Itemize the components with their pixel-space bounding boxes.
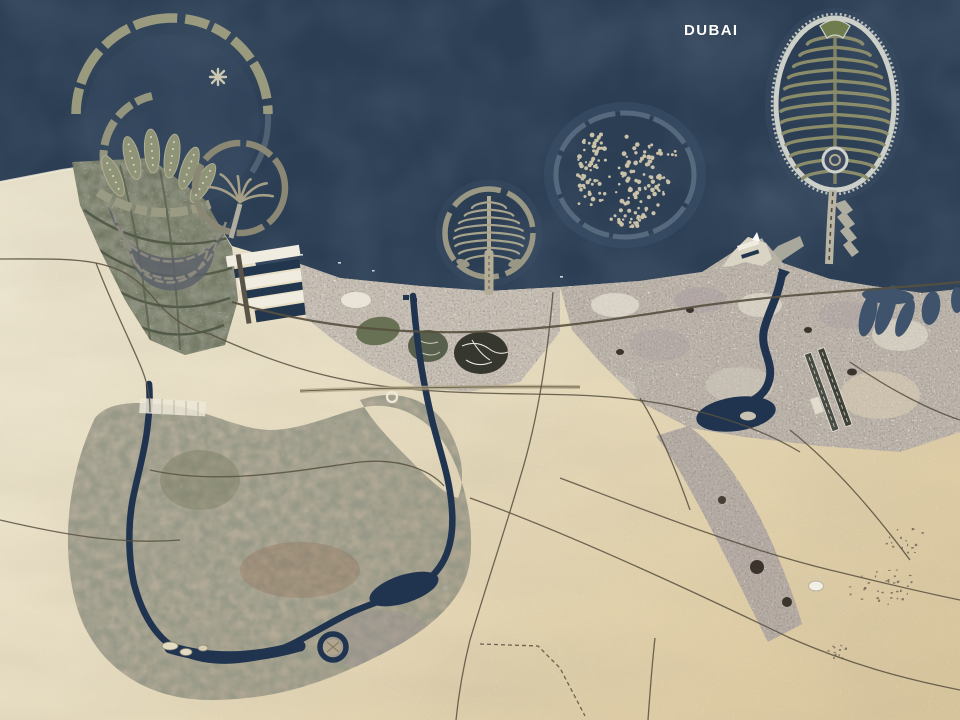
- palm-deira-hub: [823, 148, 847, 172]
- city-label: DUBAI: [684, 22, 739, 39]
- slide: DUBAI: [0, 0, 960, 720]
- lagoon-island: [740, 412, 756, 421]
- stadium: [809, 581, 824, 591]
- star-island: [210, 69, 226, 85]
- dubai-satellite-map: [0, 0, 960, 720]
